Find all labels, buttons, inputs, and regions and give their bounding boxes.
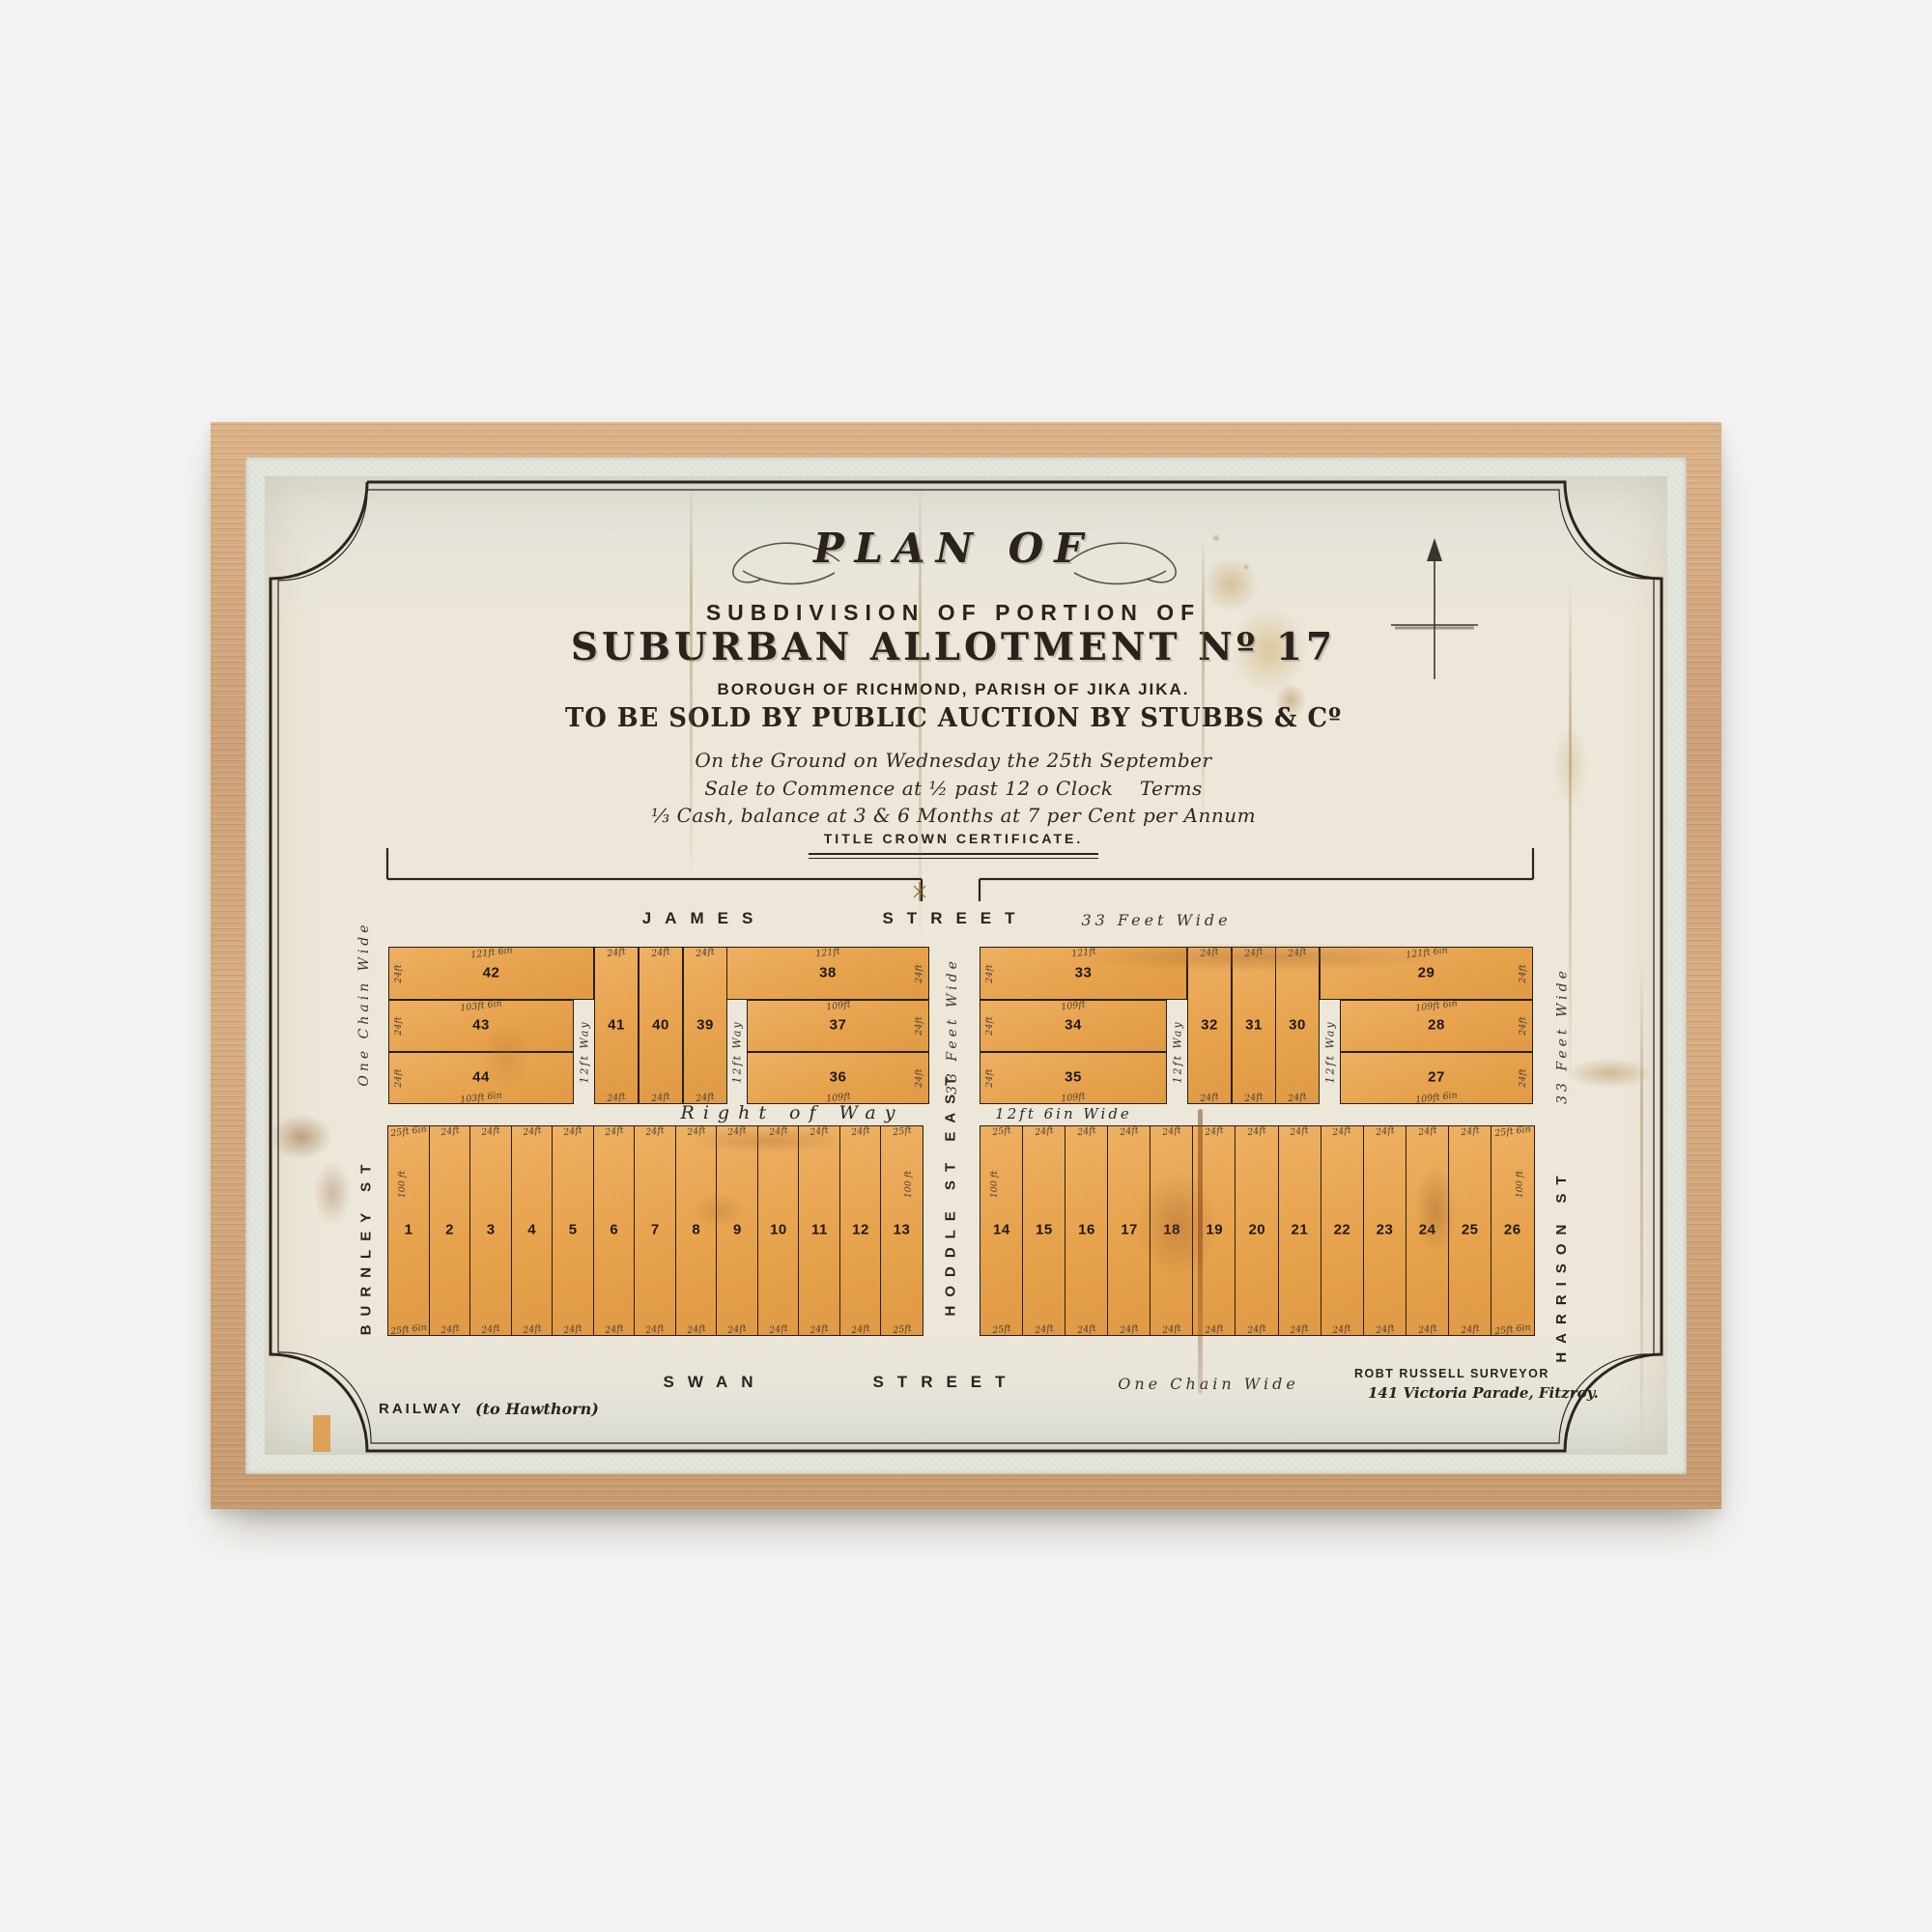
lot-26: 2625ft 6in25ft 6in100 ft bbox=[1491, 1125, 1535, 1336]
dimension-label: 24ft bbox=[1244, 1092, 1264, 1104]
way-12ft: 12ft Way bbox=[1320, 1000, 1340, 1104]
way-12ft: 12ft Way bbox=[726, 1000, 747, 1104]
lot-24: 2424ft24ft bbox=[1406, 1125, 1450, 1336]
dimension-label: 25ft 6in bbox=[1493, 1124, 1531, 1140]
dimension-label: 24ft bbox=[851, 1323, 871, 1336]
dimension-label: 24ft bbox=[1288, 1092, 1308, 1104]
dimension-label: 24ft bbox=[727, 1125, 748, 1138]
lot-1: 125ft 6in25ft 6in100 ft bbox=[387, 1125, 430, 1336]
lot-12: 1224ft24ft bbox=[839, 1125, 882, 1336]
dimension-label: 24ft bbox=[440, 1323, 460, 1336]
lot-29: 29121ft 6in24ft bbox=[1320, 947, 1533, 1000]
dimension-label: 24ft bbox=[1332, 1323, 1352, 1336]
railway-destination-label: (to Hawthorn) bbox=[475, 1400, 599, 1418]
dimension-label: 24ft bbox=[1162, 1125, 1182, 1138]
dimension-label: 24ft bbox=[1375, 1323, 1395, 1336]
dimension-label: 24ft bbox=[645, 1125, 666, 1138]
lot-25: 2524ft24ft bbox=[1448, 1125, 1492, 1336]
swan-street-width-note: One Chain Wide bbox=[1118, 1375, 1299, 1393]
harrison-street-label: HARRISON ST bbox=[1553, 1151, 1570, 1378]
lot-37: 37109ft24ft bbox=[747, 1000, 929, 1052]
railway-label: RAILWAY bbox=[379, 1401, 464, 1417]
dimension-label: 24ft bbox=[851, 1125, 871, 1138]
lot-41: 4124ft24ft bbox=[594, 947, 639, 1104]
dimension-label: 24ft bbox=[769, 1125, 789, 1138]
dimension-label: 24ft bbox=[607, 947, 627, 959]
dimension-label: 100 ft bbox=[1515, 1171, 1525, 1199]
dimension-label: 24ft bbox=[522, 1323, 542, 1336]
lot-2: 224ft24ft bbox=[429, 1125, 471, 1336]
dimension-label: 25ft 6in bbox=[1493, 1322, 1531, 1338]
lot-21: 2124ft24ft bbox=[1278, 1125, 1322, 1336]
dimension-label: 24ft bbox=[1290, 1125, 1310, 1138]
dimension-label: 24ft bbox=[651, 1092, 671, 1104]
burnley-street-label: BURNLEY ST bbox=[358, 1125, 375, 1367]
title-script-line2: Sale to Commence at ½ past 12 o Clock Te… bbox=[704, 777, 1203, 800]
way-12ft: 12ft Way bbox=[574, 1000, 594, 1104]
dimension-label: 24ft bbox=[1247, 1323, 1267, 1336]
surveyor-address-label: 141 Victoria Parade, Fitzroy. bbox=[1368, 1384, 1599, 1402]
dimension-label: 24ft bbox=[522, 1125, 542, 1138]
lot-39: 3924ft24ft bbox=[683, 947, 727, 1104]
dimension-label: 24ft bbox=[769, 1323, 789, 1336]
lot-40: 4024ft24ft bbox=[639, 947, 683, 1104]
dimension-label: 24ft bbox=[563, 1125, 583, 1138]
lot-27: 27109ft 6in24ft bbox=[1340, 1052, 1533, 1104]
dimension-label: 24ft bbox=[687, 1323, 707, 1336]
dimension-label: 24ft bbox=[1205, 1323, 1225, 1336]
dimension-label: 24ft bbox=[984, 1068, 995, 1087]
dimension-label: 24ft bbox=[393, 1016, 404, 1035]
dimension-label: 24ft bbox=[696, 947, 716, 959]
dimension-label: 24ft bbox=[1417, 1125, 1437, 1138]
lot-17: 1724ft24ft bbox=[1107, 1125, 1151, 1336]
lot-34: 34109ft24ft bbox=[980, 1000, 1167, 1052]
lot-16: 1624ft24ft bbox=[1065, 1125, 1109, 1336]
lot-8: 824ft24ft bbox=[675, 1125, 718, 1336]
swan-street-label: SWAN bbox=[664, 1373, 767, 1392]
lot-42: 42121ft 6in24ft bbox=[388, 947, 594, 1000]
dimension-label: 25ft bbox=[892, 1323, 912, 1336]
dimension-label: 24ft bbox=[1247, 1125, 1267, 1138]
dimension-label: 24ft bbox=[984, 964, 995, 982]
lot-20: 2024ft24ft bbox=[1235, 1125, 1279, 1336]
railway-corner-wash bbox=[313, 1415, 330, 1452]
lot-15: 1524ft24ft bbox=[1022, 1125, 1066, 1336]
wall: PLAN OF SUBDIVISION OF PORTION OF SUBURB… bbox=[0, 0, 1932, 1932]
dimension-label: 24ft bbox=[607, 1092, 627, 1104]
dimension-label: 24ft bbox=[1162, 1323, 1182, 1336]
lot-43: 43103ft 6in24ft bbox=[388, 1000, 574, 1052]
dimension-label: 24ft bbox=[914, 1068, 924, 1087]
lot-19: 1924ft24ft bbox=[1192, 1125, 1236, 1336]
dimension-label: 24ft bbox=[481, 1323, 501, 1336]
lot-33: 33121ft24ft bbox=[980, 947, 1187, 1000]
dimension-label: 25ft bbox=[892, 1125, 912, 1138]
lot-38: 38121ft24ft bbox=[726, 947, 929, 1000]
hoddle-street-label: HODDLE ST EAST bbox=[943, 1094, 959, 1317]
lot-6: 624ft24ft bbox=[593, 1125, 636, 1336]
right-of-way-width-note: 12ft 6in Wide bbox=[995, 1105, 1132, 1122]
dimension-label: 24ft bbox=[1200, 947, 1220, 959]
title-plan-of: PLAN OF bbox=[813, 525, 1094, 572]
lot-31: 3124ft24ft bbox=[1232, 947, 1276, 1104]
dimension-label: 24ft bbox=[1518, 1016, 1528, 1035]
james-street-label2: STREET bbox=[882, 909, 1028, 928]
picture-frame: PLAN OF SUBDIVISION OF PORTION OF SUBURB… bbox=[211, 422, 1721, 1509]
dimension-label: 25ft 6in bbox=[390, 1124, 428, 1140]
dimension-label: 24ft bbox=[1518, 964, 1528, 982]
dimension-label: 24ft bbox=[914, 964, 924, 982]
dimension-label: 121ft bbox=[815, 946, 841, 959]
way-12ft: 12ft Way bbox=[1167, 1000, 1187, 1104]
title-subdivision: SUBDIVISION OF PORTION OF bbox=[706, 600, 1201, 626]
dimension-label: 24ft bbox=[563, 1323, 583, 1336]
dimension-label: 24ft bbox=[1205, 1125, 1225, 1138]
hoddle-street-width-note: 33 Feet Wide bbox=[945, 953, 960, 1098]
title-script-line1: On the Ground on Wednesday the 25th Sept… bbox=[695, 749, 1211, 772]
dimension-label: 24ft bbox=[604, 1125, 624, 1138]
dimension-label: 24ft bbox=[1460, 1125, 1480, 1138]
dimension-label: 24ft bbox=[481, 1125, 501, 1138]
dimension-label: 24ft bbox=[1460, 1323, 1480, 1336]
dimension-label: 24ft bbox=[1518, 1068, 1528, 1087]
dimension-label: 24ft bbox=[1417, 1323, 1437, 1336]
dimension-label: 121ft bbox=[1070, 946, 1096, 959]
dimension-label: 25ft 6in bbox=[390, 1322, 428, 1338]
lot-3: 324ft24ft bbox=[469, 1125, 512, 1336]
james-street-width-note: 33 Feet Wide bbox=[1081, 911, 1231, 929]
dimension-label: 121ft 6in bbox=[1405, 945, 1448, 960]
dimension-label: 103ft 6in bbox=[460, 1090, 503, 1105]
dimension-label: 24ft bbox=[1120, 1323, 1140, 1336]
dimension-label: 24ft bbox=[604, 1323, 624, 1336]
dimension-label: 121ft 6in bbox=[469, 945, 513, 960]
lot-32: 3224ft24ft bbox=[1187, 947, 1232, 1104]
lot-23: 2324ft24ft bbox=[1363, 1125, 1407, 1336]
dimension-label: 24ft bbox=[1375, 1125, 1395, 1138]
dimension-label: 109ft 6in bbox=[1415, 998, 1459, 1013]
dimension-label: 24ft bbox=[1077, 1323, 1097, 1336]
map-paper: PLAN OF SUBDIVISION OF PORTION OF SUBURB… bbox=[265, 476, 1667, 1455]
dimension-label: 24ft bbox=[984, 1016, 995, 1035]
lot-11: 1124ft24ft bbox=[798, 1125, 840, 1336]
dimension-label: 100 ft bbox=[903, 1171, 914, 1199]
lot-35: 35109ft24ft bbox=[980, 1052, 1167, 1104]
lot-13: 1325ft25ft100 ft bbox=[880, 1125, 923, 1336]
dimension-label: 24ft bbox=[651, 947, 671, 959]
dimension-label: 24ft bbox=[1035, 1125, 1055, 1138]
lot-22: 2224ft24ft bbox=[1321, 1125, 1365, 1336]
swan-street-label2: STREET bbox=[872, 1373, 1018, 1392]
dimension-label: 109ft bbox=[825, 999, 851, 1012]
dimension-label: 24ft bbox=[393, 1068, 404, 1087]
title-allotment: SUBURBAN ALLOTMENT Nº 17 bbox=[571, 625, 1336, 669]
dimension-label: 24ft bbox=[440, 1125, 460, 1138]
dimension-label: 24ft bbox=[1244, 947, 1264, 959]
title-borough: BOROUGH OF RICHMOND, PARISH OF JIKA JIKA… bbox=[717, 680, 1189, 699]
dimension-label: 24ft bbox=[810, 1125, 830, 1138]
james-street-label: JAMES bbox=[642, 909, 767, 928]
title-double-rule bbox=[809, 853, 1098, 859]
surveyor-name-label: ROBT RUSSELL SURVEYOR bbox=[1354, 1367, 1549, 1380]
lot-9: 924ft24ft bbox=[716, 1125, 758, 1336]
dimension-label: 24ft bbox=[687, 1125, 707, 1138]
title-auction: TO BE SOLD BY PUBLIC AUCTION BY STUBBS &… bbox=[565, 703, 1342, 733]
lot-7: 724ft24ft bbox=[634, 1125, 676, 1336]
title-script-line3: ⅓ Cash, balance at 3 & 6 Months at 7 per… bbox=[651, 804, 1256, 827]
dimension-label: 24ft bbox=[1077, 1125, 1097, 1138]
right-of-way-label: Right of Way bbox=[681, 1102, 904, 1123]
lot-44: 44103ft 6in24ft bbox=[388, 1052, 574, 1104]
dimension-label: 109ft 6in bbox=[1415, 1090, 1459, 1105]
dimension-label: 24ft bbox=[1332, 1125, 1352, 1138]
lot-4: 424ft24ft bbox=[511, 1125, 554, 1336]
dimension-label: 24ft bbox=[1200, 1092, 1220, 1104]
burnley-street-width-note: One Chain Wide bbox=[356, 912, 372, 1095]
lot-5: 524ft24ft bbox=[552, 1125, 594, 1336]
dimension-label: 103ft 6in bbox=[460, 998, 503, 1013]
dimension-label: 100 ft bbox=[989, 1171, 1000, 1199]
dimension-label: 24ft bbox=[645, 1323, 666, 1336]
dimension-label: 24ft bbox=[393, 964, 404, 982]
north-arrow-icon bbox=[1376, 532, 1501, 692]
lot-18: 1824ft24ft bbox=[1150, 1125, 1194, 1336]
harrison-street-width-note: 33 Feet Wide bbox=[1555, 923, 1571, 1150]
dimension-label: 24ft bbox=[1035, 1323, 1055, 1336]
lot-28: 28109ft 6in24ft bbox=[1340, 1000, 1533, 1052]
lot-36: 36109ft24ft bbox=[747, 1052, 929, 1104]
dimension-label: 25ft bbox=[992, 1125, 1012, 1138]
dimension-label: 100 ft bbox=[397, 1171, 408, 1199]
frame-mat: PLAN OF SUBDIVISION OF PORTION OF SUBURB… bbox=[245, 457, 1687, 1474]
dimension-label: 109ft bbox=[1061, 1091, 1087, 1104]
dimension-label: 109ft bbox=[1061, 999, 1087, 1012]
dimension-label: 24ft bbox=[810, 1323, 830, 1336]
dimension-label: 24ft bbox=[727, 1323, 748, 1336]
lot-30: 3024ft24ft bbox=[1275, 947, 1320, 1104]
lot-10: 1024ft24ft bbox=[757, 1125, 800, 1336]
lot-14: 1425ft25ft100 ft bbox=[980, 1125, 1024, 1336]
title-certificate: TITLE CROWN CERTIFICATE. bbox=[824, 831, 1084, 846]
dimension-label: 24ft bbox=[1290, 1323, 1310, 1336]
dimension-label: 25ft bbox=[992, 1323, 1012, 1336]
dimension-label: 24ft bbox=[1288, 947, 1308, 959]
dimension-label: 24ft bbox=[1120, 1125, 1140, 1138]
dimension-label: 24ft bbox=[914, 1016, 924, 1035]
